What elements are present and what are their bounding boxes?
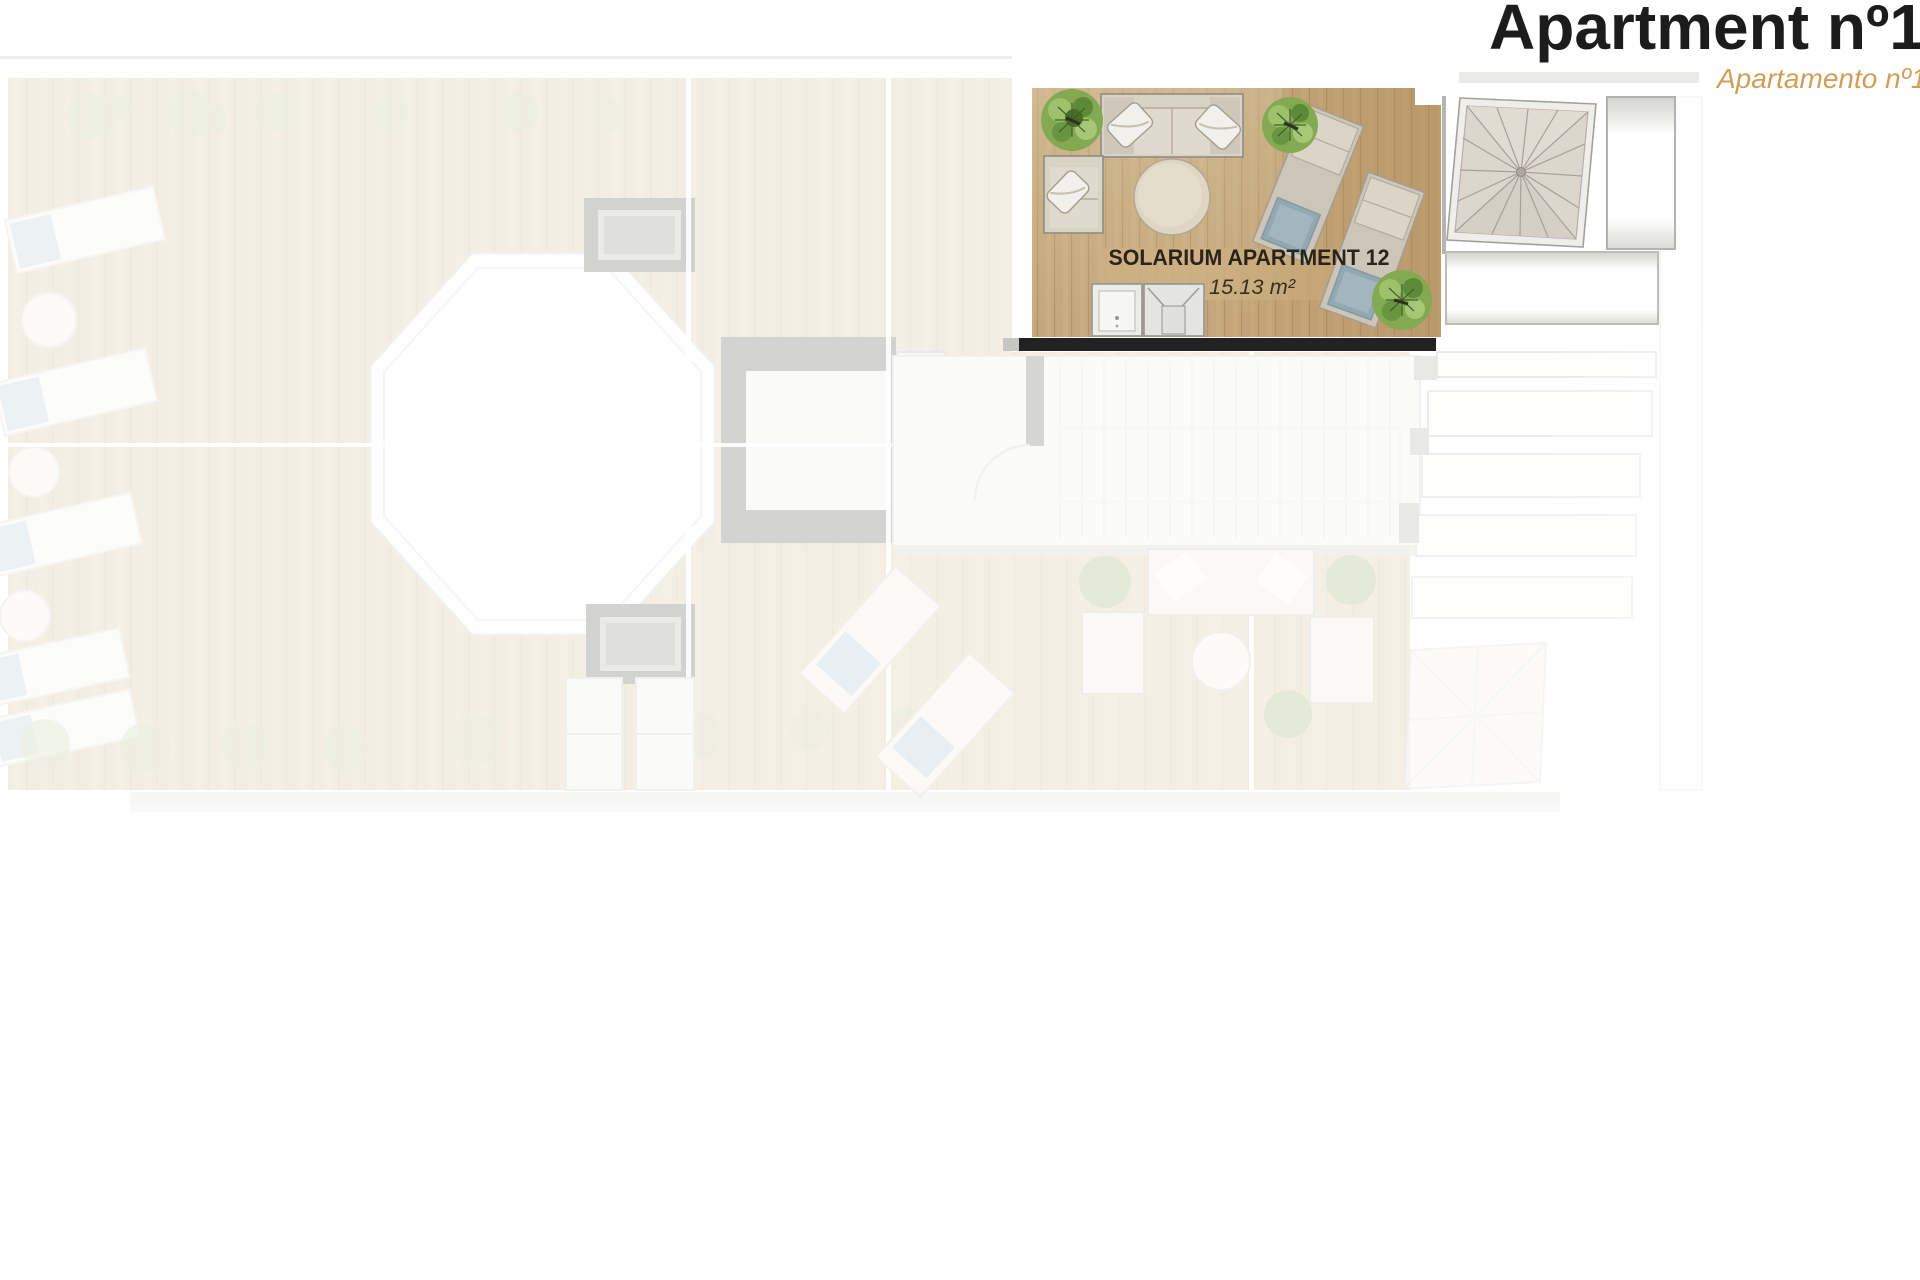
svg-text:Apartment nº12: Apartment nº12	[1489, 0, 1920, 63]
svg-text:SOLARIUM APARTMENT 12: SOLARIUM APARTMENT 12	[1109, 245, 1390, 270]
svg-text:Apartamento nº12: Apartamento nº12	[1715, 63, 1920, 94]
svg-text:15.13 m²: 15.13 m²	[1209, 276, 1296, 299]
